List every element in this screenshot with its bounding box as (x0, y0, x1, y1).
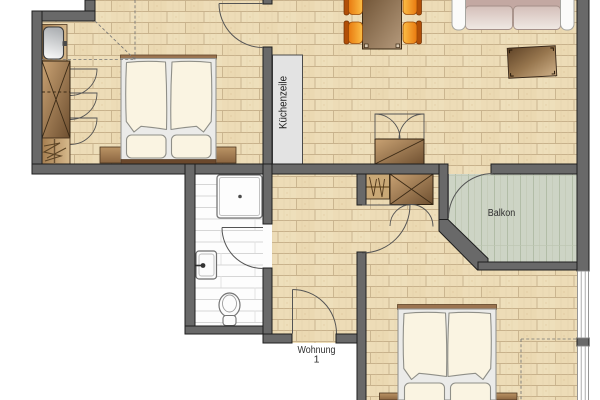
svg-text:Balkon: Balkon (488, 208, 516, 219)
svg-text:Küchenzeile: Küchenzeile (278, 76, 290, 129)
svg-text:1: 1 (314, 354, 320, 366)
